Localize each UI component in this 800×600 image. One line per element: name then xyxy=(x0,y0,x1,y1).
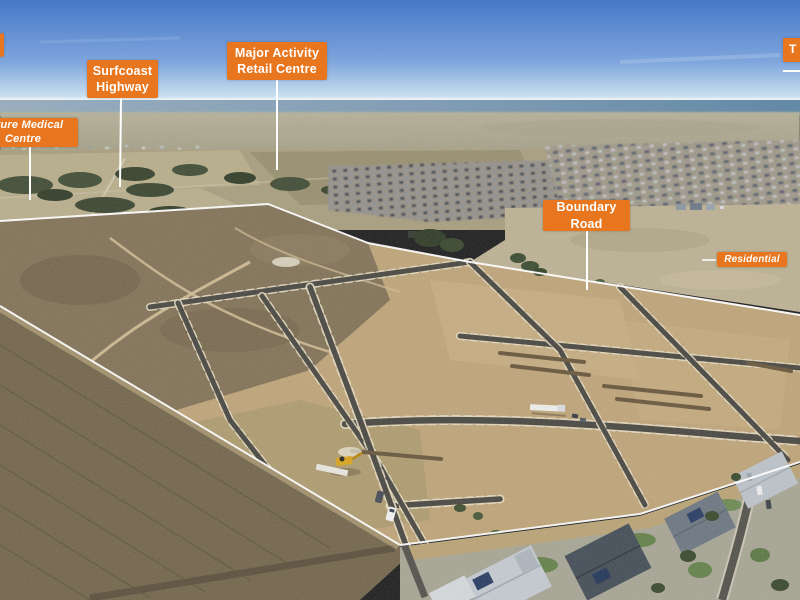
label-line: Surfcoast xyxy=(87,63,158,79)
label-cutoff-top-right: T xyxy=(783,38,800,62)
label-line: Major Activity xyxy=(227,45,327,61)
label-major-activity-retail-centre: Major Activity Retail Centre xyxy=(227,42,327,80)
label-line: Future Medical xyxy=(0,119,78,132)
label-line: Residential xyxy=(717,252,787,267)
leader-line-surfcoast xyxy=(120,98,121,187)
label-boundary-road: Boundary Road xyxy=(543,200,630,231)
label-future-medical-centre: Future Medical Centre xyxy=(0,118,78,147)
label-line: Centre xyxy=(0,133,78,146)
label-surfcoast-highway: Surfcoast Highway xyxy=(87,60,158,98)
aerial-photo-page: Surfcoast Highway Major Activity Retail … xyxy=(0,0,800,600)
label-line: Retail Centre xyxy=(227,61,327,77)
label-cutoff-left xyxy=(0,33,4,57)
label-line: Highway xyxy=(87,79,158,95)
label-line: Road xyxy=(543,216,630,232)
label-line: Boundary xyxy=(543,199,630,215)
label-residential: Residential xyxy=(717,252,787,267)
label-line: T xyxy=(789,42,797,58)
